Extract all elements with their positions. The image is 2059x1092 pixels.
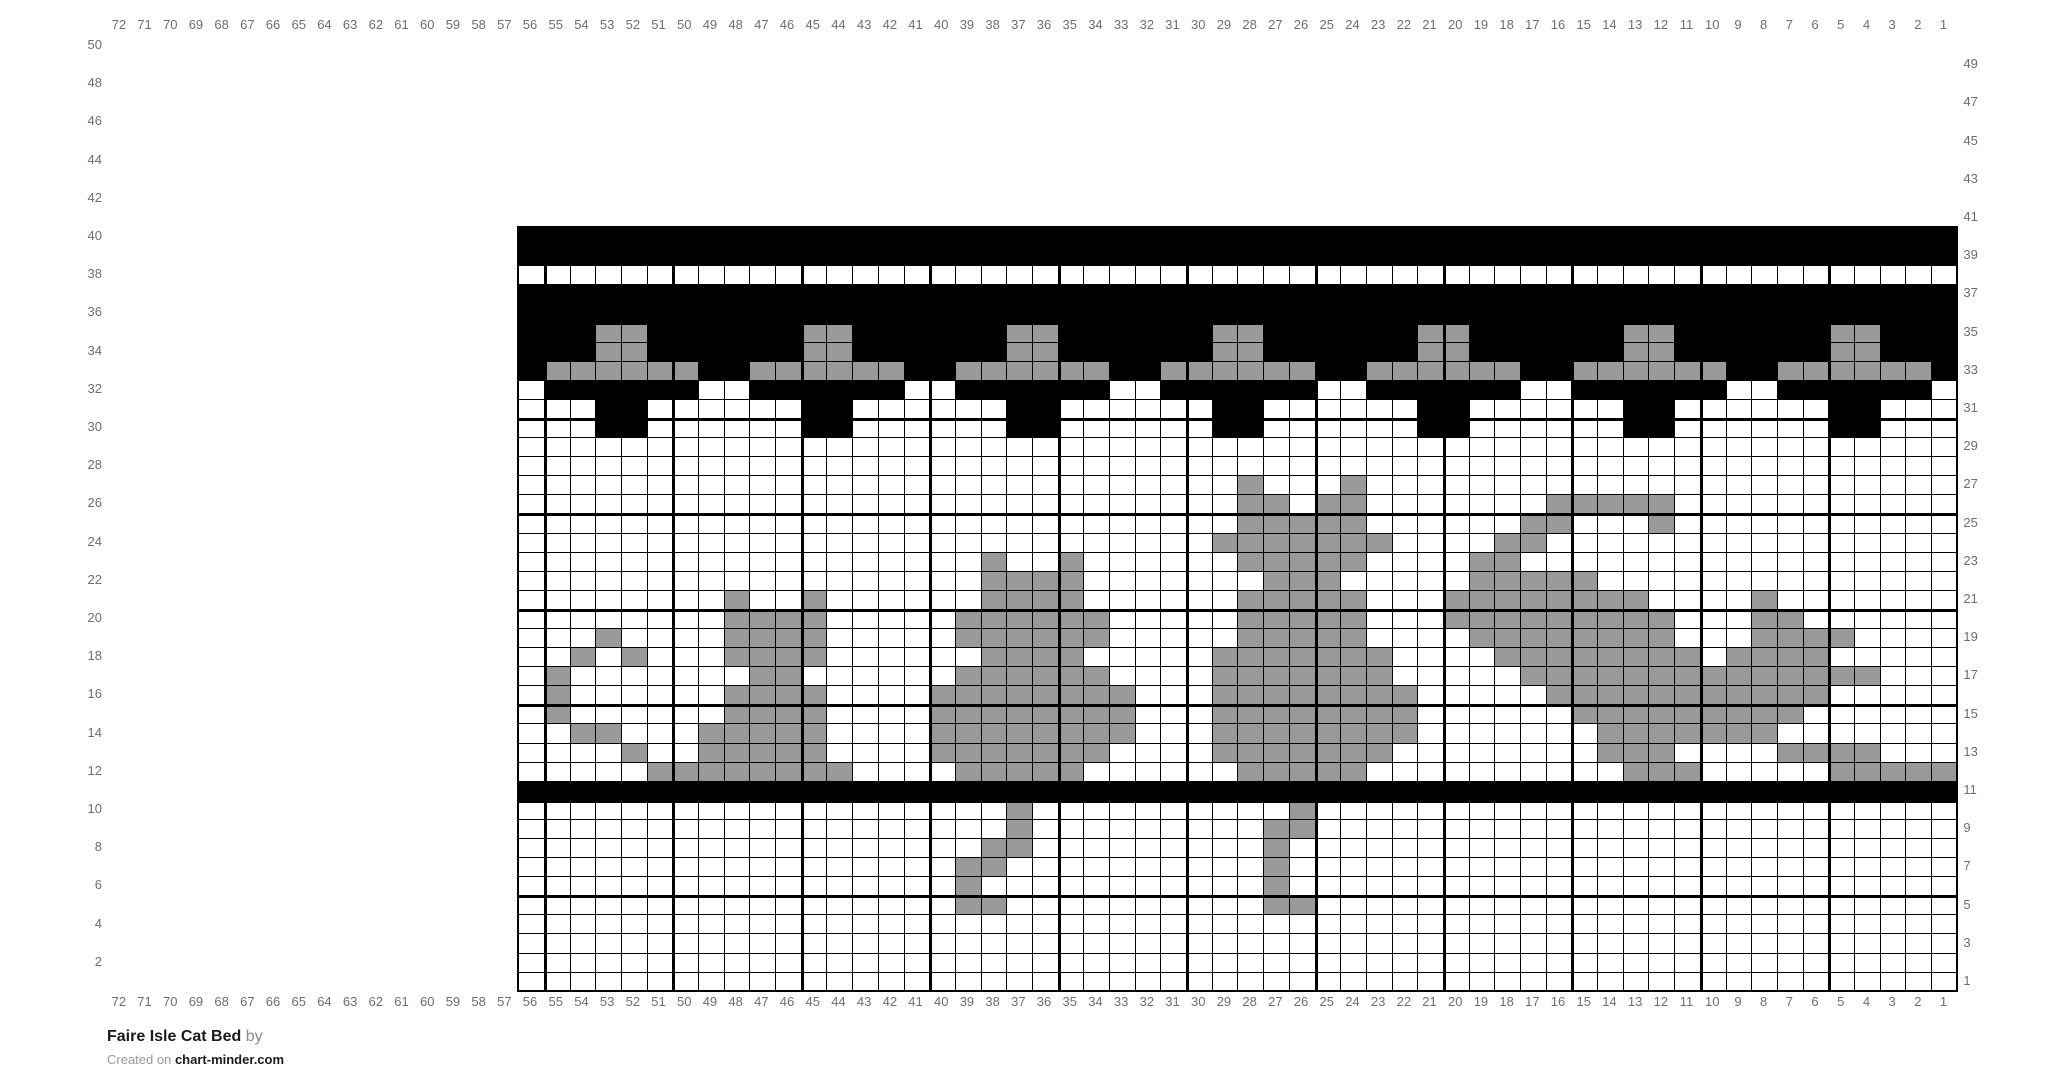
grid-cell [956,724,982,743]
grid-cell [1059,476,1085,495]
grid-cell [802,839,828,858]
grid-cell [930,323,956,342]
grid-cell [622,591,648,610]
grid-cell [1906,915,1932,934]
grid-cell [1470,285,1496,304]
grid-cell [1855,514,1881,533]
grid-cell [1290,514,1316,533]
grid-cell [1161,514,1187,533]
grid-cell [1084,572,1110,591]
grid-cell [1701,362,1727,381]
grid-cell [1393,896,1419,915]
grid-cell [1598,801,1624,820]
grid-cell [1906,667,1932,686]
grid-cell [1701,629,1727,648]
grid-cell [1752,915,1778,934]
col-label-top: 19 [1468,17,1494,33]
grid-cell [1470,839,1496,858]
grid-cell [1316,686,1342,705]
grid-cell [1572,896,1598,915]
grid-cell [1290,343,1316,362]
grid-cell [1881,419,1907,438]
grid-cell [1855,839,1881,858]
grid-cell [1444,667,1470,686]
grid-cell [905,457,931,476]
grid-cell [1470,572,1496,591]
grid-cell [1521,839,1547,858]
grid-cell [1290,915,1316,934]
grid-cell [545,954,571,973]
col-label-bottom: 7 [1777,994,1803,1010]
col-label-bottom: 67 [235,994,261,1010]
grid-cell [648,610,674,629]
grid-cell [1470,744,1496,763]
grid-cell [982,228,1008,247]
grid-cell [1367,820,1393,839]
grid-cell [1393,801,1419,820]
grid-cell [1444,801,1470,820]
grid-cell [1367,534,1393,553]
grid-cell [1238,285,1264,304]
col-label-top: 59 [440,17,466,33]
grid-cell [956,476,982,495]
grid-cell [1418,438,1444,457]
grid-cell [956,343,982,362]
grid-cell [1752,323,1778,342]
grid-cell [1161,266,1187,285]
grid-cell [1084,534,1110,553]
grid-cell [545,686,571,705]
grid-cell [596,763,622,782]
col-label-bottom: 5 [1828,994,1854,1010]
grid-cell [1906,610,1932,629]
grid-cell [1187,820,1213,839]
grid-cell [571,648,597,667]
grid-cell [1367,610,1393,629]
grid-cell [1110,553,1136,572]
grid-cell [1855,266,1881,285]
grid-cell [1495,915,1521,934]
grid-cell [1701,915,1727,934]
grid-cell [699,610,725,629]
grid-cell [750,343,776,362]
grid-cell [802,247,828,266]
grid-cell [1238,419,1264,438]
grid-cell [1033,877,1059,896]
grid-cell [1290,419,1316,438]
col-label-bottom: 4 [1854,994,1880,1010]
grid-cell [1624,801,1650,820]
grid-cell [648,667,674,686]
grid-cell [1264,954,1290,973]
grid-cell [1906,801,1932,820]
grid-cell [519,514,545,533]
grid-cell [1521,705,1547,724]
grid-cell [1161,839,1187,858]
grid-cell [1033,381,1059,400]
grid-cell [1316,954,1342,973]
grid-cell [827,973,853,992]
grid-cell [673,667,699,686]
grid-cell [1136,877,1162,896]
grid-cell [1727,648,1753,667]
grid-cell [1624,304,1650,323]
grid-cell [1033,323,1059,342]
grid-cell [1393,686,1419,705]
grid-cell [1110,400,1136,419]
grid-cell [1213,724,1239,743]
grid-cell [1367,572,1393,591]
grid-cell [519,896,545,915]
grid-cell [1649,438,1675,457]
grid-cell [982,304,1008,323]
grid-cell [982,362,1008,381]
grid-cell [1136,782,1162,801]
grid-cell [1881,247,1907,266]
grid-cell [1161,724,1187,743]
grid-cell [1906,419,1932,438]
grid-cell [1238,323,1264,342]
grid-cell [1059,744,1085,763]
grid-cell [673,266,699,285]
grid-cell [1470,763,1496,782]
grid-cell [1727,782,1753,801]
grid-cell [519,973,545,992]
grid-cell [1161,973,1187,992]
grid-cell [1084,228,1110,247]
grid-cell [1161,438,1187,457]
grid-cell [1701,438,1727,457]
grid-cell [1444,343,1470,362]
grid-cell [1393,667,1419,686]
grid-cell [1213,362,1239,381]
grid-cell [1341,973,1367,992]
grid-cell [1624,495,1650,514]
grid-cell [596,954,622,973]
grid-cell [802,343,828,362]
row-label-right: 9 [1963,818,2003,837]
grid-cell [673,820,699,839]
grid-cell [1470,896,1496,915]
grid-cell [596,610,622,629]
grid-cell [905,381,931,400]
grid-cell [1906,400,1932,419]
grid-cell [1033,400,1059,419]
grid-cell [750,877,776,896]
grid-cell [571,934,597,953]
grid-cell [879,629,905,648]
grid-cell [1393,744,1419,763]
grid-cell [725,514,751,533]
grid-cell [879,744,905,763]
grid-cell [750,285,776,304]
grid-cell [571,553,597,572]
grid-cell [1932,285,1958,304]
grid-cell [930,934,956,953]
grid-cell [1649,896,1675,915]
grid-cell [1521,648,1547,667]
grid-cell [1495,228,1521,247]
grid-cell [1701,285,1727,304]
grid-cell [519,915,545,934]
grid-cell [1238,514,1264,533]
grid-cell [519,304,545,323]
grid-cell [1521,534,1547,553]
grid-cell [545,553,571,572]
grid-cell [1881,629,1907,648]
col-label-bottom: 53 [594,994,620,1010]
grid-cell [1701,724,1727,743]
grid-cell [956,915,982,934]
grid-cell [1932,247,1958,266]
grid-cell [1675,266,1701,285]
grid-cell [1290,954,1316,973]
grid-cell [879,476,905,495]
grid-cell [1649,744,1675,763]
grid-cell [725,381,751,400]
col-label-top: 72 [106,17,132,33]
grid-cell [1264,648,1290,667]
grid-cell [1367,648,1393,667]
grid-cell [1238,610,1264,629]
grid-cell [905,973,931,992]
grid-cell [1110,304,1136,323]
grid-cell [1855,591,1881,610]
grid-cell [1675,648,1701,667]
grid-cell [1572,343,1598,362]
col-label-top: 2 [1905,17,1931,33]
grid-cell [1264,266,1290,285]
grid-cell [1881,591,1907,610]
grid-cell [1444,839,1470,858]
grid-cell [1110,228,1136,247]
grid-cell [1393,973,1419,992]
grid-cell [905,629,931,648]
grid-cell [776,820,802,839]
grid-cell [519,839,545,858]
grid-cell [1881,667,1907,686]
col-label-top: 9 [1725,17,1751,33]
grid-cell [930,973,956,992]
grid-cell [622,419,648,438]
grid-cell [725,591,751,610]
grid-cell [1238,782,1264,801]
grid-cell [1470,648,1496,667]
grid-cell [1624,973,1650,992]
grid-cell [1367,553,1393,572]
grid-cell [1393,724,1419,743]
grid-cell [1367,381,1393,400]
grid-cell [1110,495,1136,514]
grid-cell [1161,495,1187,514]
grid-cell [1367,323,1393,342]
grid-cell [1829,247,1855,266]
grid-cell [1675,457,1701,476]
grid-cell [571,877,597,896]
grid-cell [545,304,571,323]
grid-cell [1598,667,1624,686]
grid-cell [750,400,776,419]
grid-cell [1059,915,1085,934]
grid-cell [571,438,597,457]
grid-cell [776,400,802,419]
grid-cell [1598,572,1624,591]
grid-cell [802,457,828,476]
grid-cell [519,247,545,266]
grid-cell [1161,629,1187,648]
grid-cell [545,476,571,495]
grid-cell [1264,572,1290,591]
grid-cell [1778,553,1804,572]
grid-cell [750,763,776,782]
grid-cell [1727,438,1753,457]
grid-cell [1495,419,1521,438]
grid-cell [1572,973,1598,992]
grid-cell [725,362,751,381]
grid-cell [1932,973,1958,992]
grid-cell [1521,667,1547,686]
grid-cell [1033,362,1059,381]
grid-cell [1290,247,1316,266]
grid-cell [1521,686,1547,705]
grid-cell [1932,915,1958,934]
grid-cell [1521,495,1547,514]
grid-cell [802,667,828,686]
grid-cell [827,839,853,858]
grid-cell [827,686,853,705]
grid-cell [956,495,982,514]
grid-cell [1804,419,1830,438]
col-label-top: 7 [1777,17,1803,33]
grid-cell [1213,648,1239,667]
grid-cell [1290,534,1316,553]
grid-cell [1778,724,1804,743]
grid-cell [879,724,905,743]
grid-cell [1778,934,1804,953]
grid-cell [1238,304,1264,323]
grid-cell [802,782,828,801]
grid-cell [1393,782,1419,801]
grid-cell [1675,801,1701,820]
grid-cell [1470,228,1496,247]
grid-cell [1572,285,1598,304]
grid-cell [905,801,931,820]
grid-cell [1804,686,1830,705]
grid-cell [1521,476,1547,495]
grid-cell [1855,934,1881,953]
grid-cell [1393,457,1419,476]
grid-cell [879,954,905,973]
grid-cell [1804,247,1830,266]
grid-cell [1444,438,1470,457]
grid-cell [982,801,1008,820]
grid-cell [750,419,776,438]
grid-cell [879,266,905,285]
grid-cell [1264,419,1290,438]
grid-cell [1547,534,1573,553]
row-label-right: 29 [1963,436,2003,455]
grid-cell [622,877,648,896]
grid-cell [853,534,879,553]
grid-cell [699,648,725,667]
grid-cell [956,858,982,877]
grid-cell [1264,495,1290,514]
row-label-left: 18 [6,646,102,665]
grid-cell [956,744,982,763]
grid-cell [1829,686,1855,705]
grid-cell [1187,362,1213,381]
grid-cell [1341,362,1367,381]
grid-cell [853,858,879,877]
grid-cell [1007,973,1033,992]
grid-cell [1829,667,1855,686]
col-label-top: 58 [466,17,492,33]
grid-cell [1881,304,1907,323]
grid-cell [982,705,1008,724]
grid-cell [776,266,802,285]
grid-cell [1675,343,1701,362]
grid-cell [596,266,622,285]
grid-cell [802,553,828,572]
grid-cell [1804,915,1830,934]
grid-cell [1136,228,1162,247]
grid-cell [699,763,725,782]
grid-cell [1213,934,1239,953]
grid-cell [1367,343,1393,362]
grid-cell [1084,934,1110,953]
grid-cell [1778,629,1804,648]
grid-cell [1521,362,1547,381]
grid-cell [1444,763,1470,782]
col-label-bottom: 70 [157,994,183,1010]
grid-cell [1444,858,1470,877]
grid-cell [1572,572,1598,591]
grid-cell [827,724,853,743]
grid-cell [1701,667,1727,686]
grid-cell [750,495,776,514]
grid-cell [622,247,648,266]
grid-cell [1444,247,1470,266]
grid-cell [571,629,597,648]
grid-cell [545,610,571,629]
grid-cell [956,705,982,724]
grid-cell [853,343,879,362]
col-label-bottom: 15 [1571,994,1597,1010]
grid-cell [853,495,879,514]
grid-cell [1187,247,1213,266]
grid-cell [1033,419,1059,438]
grid-cell [1752,610,1778,629]
grid-cell [1084,610,1110,629]
grid-cell [1187,419,1213,438]
grid-cell [1804,495,1830,514]
grid-cell [750,304,776,323]
grid-cell [1649,476,1675,495]
grid-cell [1675,419,1701,438]
grid-cell [1110,858,1136,877]
grid-cell [1624,763,1650,782]
grid-cell [1495,553,1521,572]
grid-cell [1264,877,1290,896]
grid-cell [1855,820,1881,839]
grid-cell [519,228,545,247]
grid-cell [1598,514,1624,533]
grid-cell [1495,285,1521,304]
col-label-bottom: 69 [183,994,209,1010]
grid-cell [1187,782,1213,801]
grid-cell [982,667,1008,686]
grid-cell [1881,973,1907,992]
